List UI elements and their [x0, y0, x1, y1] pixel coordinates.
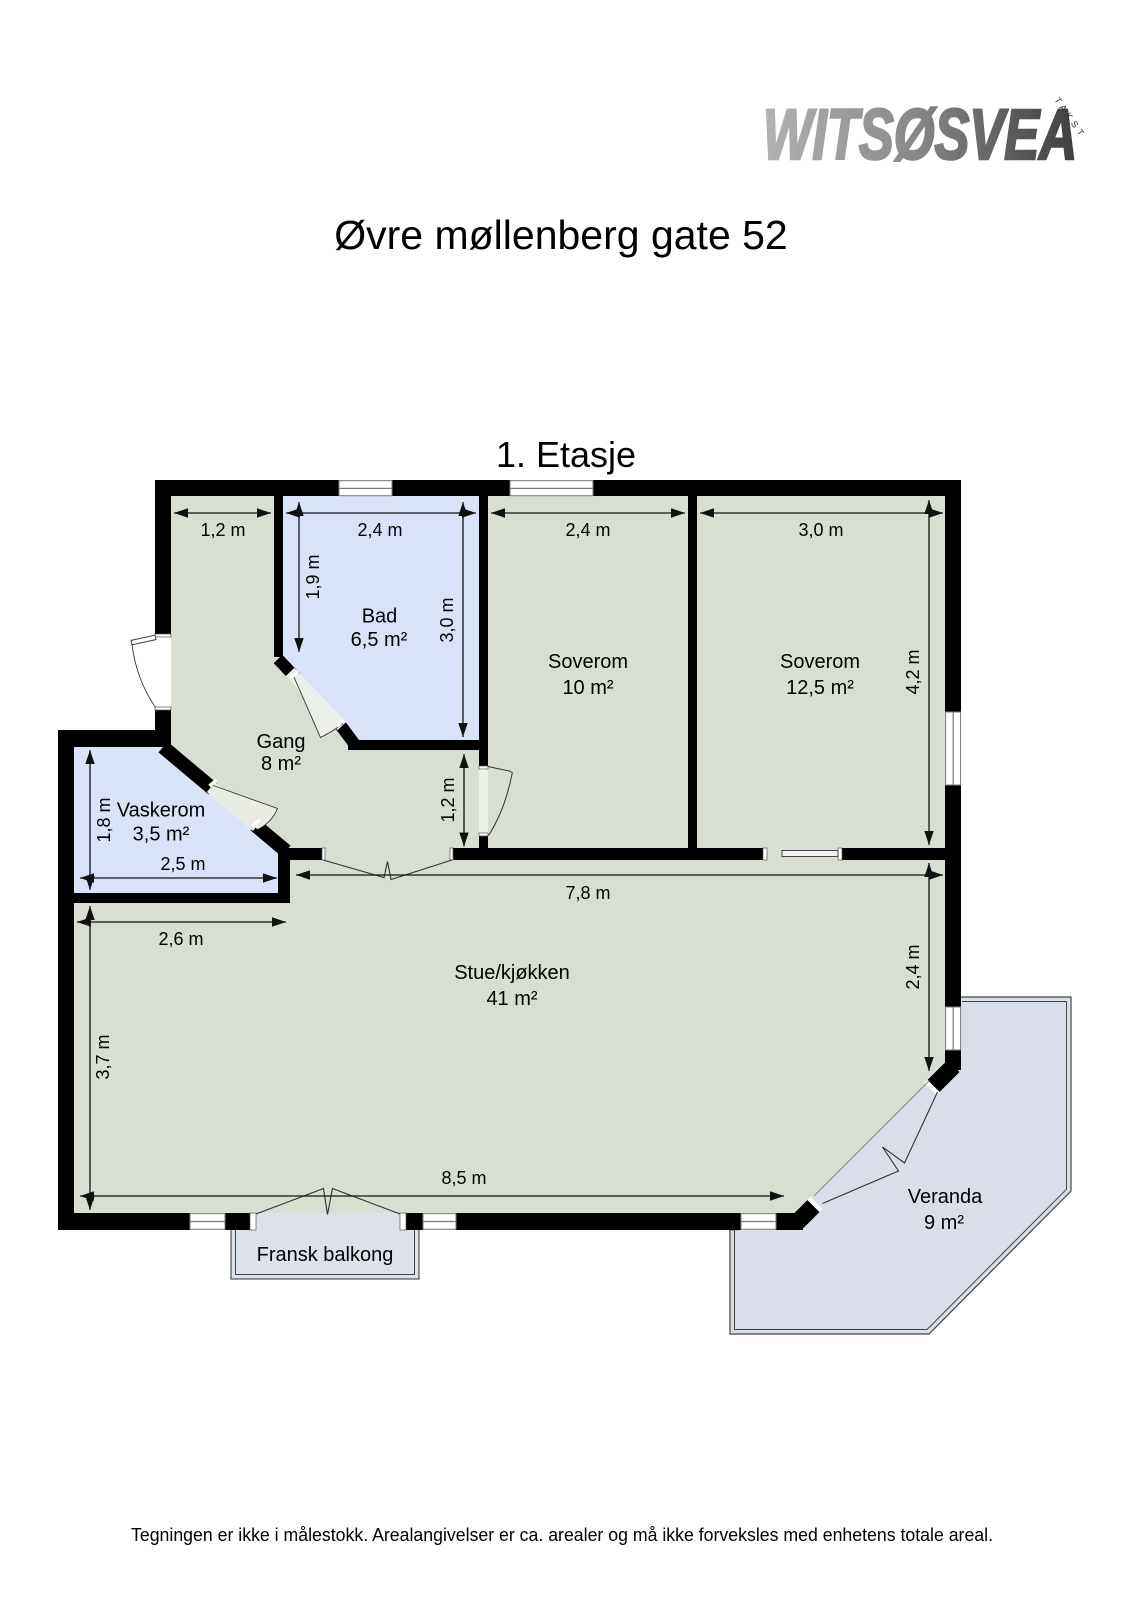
svg-text:2,4 m: 2,4 m — [565, 520, 610, 540]
svg-text:Gang: Gang — [257, 731, 306, 753]
svg-text:2,6 m: 2,6 m — [158, 929, 203, 949]
svg-text:3,7 m: 3,7 m — [93, 1034, 113, 1079]
svg-text:1,8 m: 1,8 m — [94, 797, 114, 842]
svg-text:12,5 m²: 12,5 m² — [786, 677, 854, 699]
svg-text:WITSØSVEA: WITSØSVEA — [763, 96, 1077, 175]
svg-text:1,2 m: 1,2 m — [200, 520, 245, 540]
svg-text:2,4 m: 2,4 m — [903, 944, 923, 989]
svg-text:1. Etasje: 1. Etasje — [496, 434, 636, 475]
svg-text:3,0 m: 3,0 m — [437, 597, 457, 642]
svg-text:3,5 m²: 3,5 m² — [133, 824, 190, 846]
svg-text:8 m²: 8 m² — [261, 753, 301, 775]
svg-text:Soverom: Soverom — [548, 651, 628, 673]
svg-text:Øvre møllenberg gate 52: Øvre møllenberg gate 52 — [334, 212, 788, 258]
svg-text:Bad: Bad — [362, 606, 398, 628]
svg-text:3,0 m: 3,0 m — [798, 520, 843, 540]
svg-text:8,5 m: 8,5 m — [441, 1168, 486, 1188]
svg-text:7,8 m: 7,8 m — [565, 883, 610, 903]
svg-text:Vaskerom: Vaskerom — [117, 800, 206, 822]
svg-text:Soverom: Soverom — [780, 651, 860, 673]
svg-text:Tegningen er ikke i målestokk.: Tegningen er ikke i målestokk. Arealangi… — [131, 1524, 993, 1545]
svg-text:Veranda: Veranda — [908, 1186, 983, 1208]
svg-text:Stue/kjøkken: Stue/kjøkken — [454, 962, 570, 984]
svg-text:2,4 m: 2,4 m — [357, 520, 402, 540]
svg-text:4,2 m: 4,2 m — [903, 649, 923, 694]
svg-text:9 m²: 9 m² — [924, 1212, 964, 1234]
svg-text:1,9 m: 1,9 m — [303, 554, 323, 599]
svg-text:6,5 m²: 6,5 m² — [351, 629, 408, 651]
svg-text:2,5 m: 2,5 m — [160, 854, 205, 874]
svg-text:10 m²: 10 m² — [562, 677, 613, 699]
svg-text:Fransk balkong: Fransk balkong — [257, 1244, 394, 1266]
svg-text:1,2 m: 1,2 m — [438, 777, 458, 822]
svg-text:41 m²: 41 m² — [486, 988, 537, 1010]
